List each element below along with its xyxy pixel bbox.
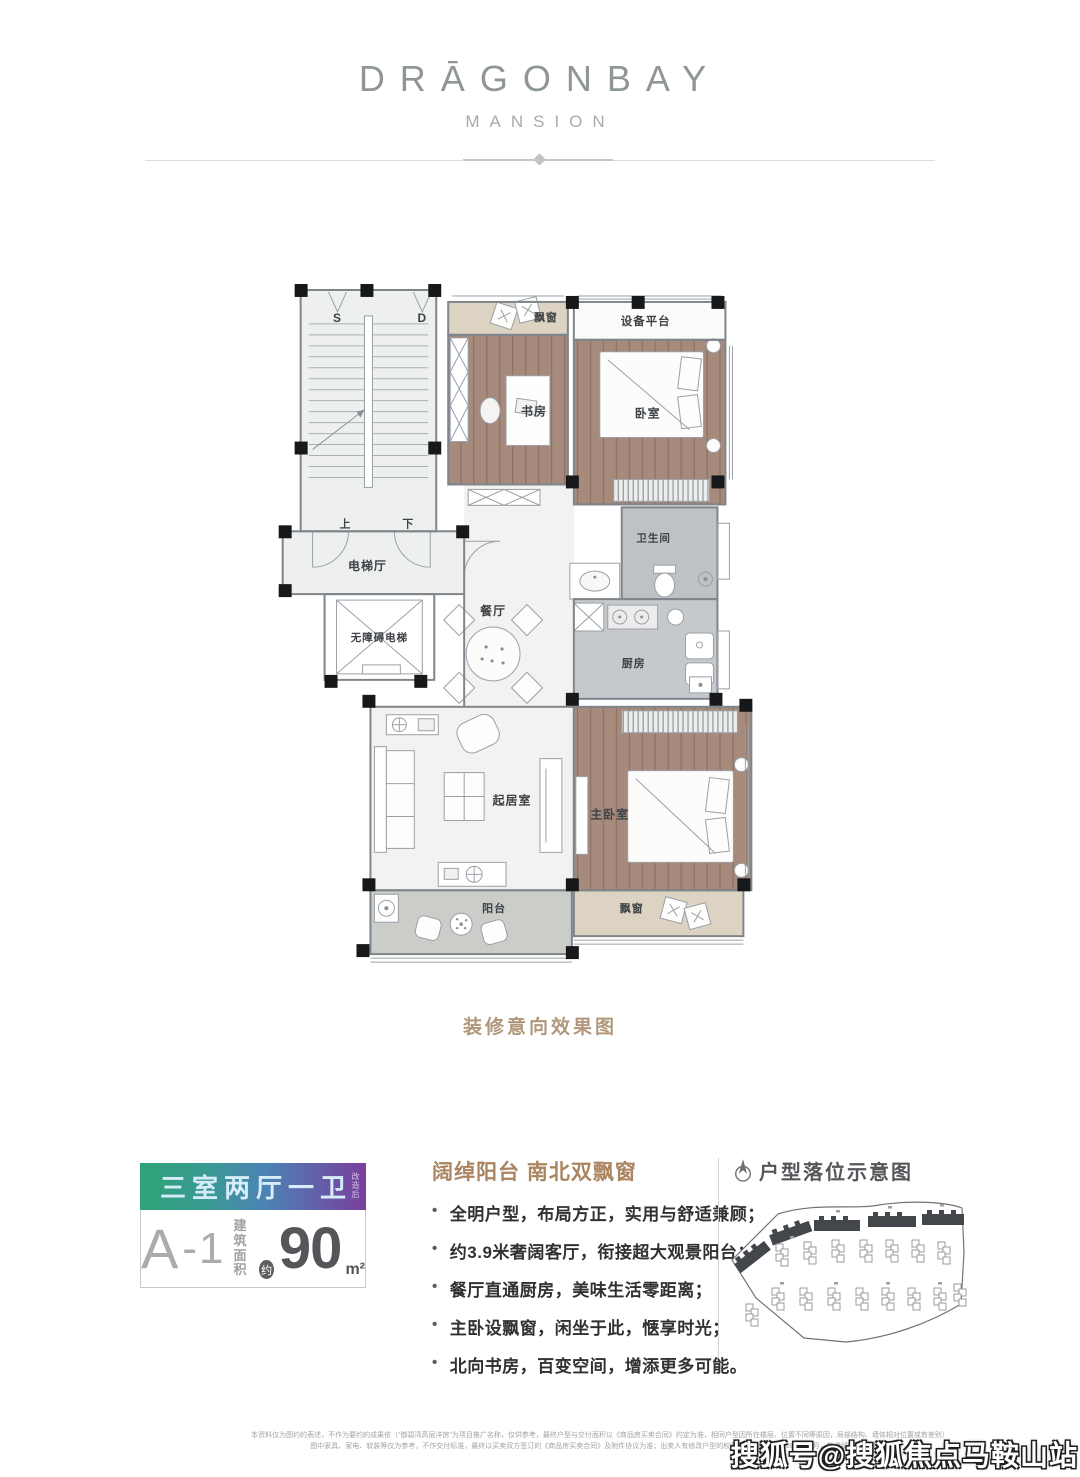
unit-headline: 三室两厅一卫 [154, 1168, 352, 1205]
divider-ornament-icon [533, 153, 546, 166]
plan-caption: 装修意向效果图 [0, 1012, 1080, 1039]
unit-area-value: 90 [279, 1220, 342, 1278]
features-list: •全明户型，布局方正，实用与舒适兼顾； •约3.9米奢阔客厅，衔接超大观景阳台；… [432, 1200, 712, 1377]
compass-icon [733, 1158, 753, 1184]
bullet-icon: • [432, 1314, 438, 1335]
label-dining: 餐厅 [480, 603, 506, 618]
sitemap-header: 户型落位示意图 [733, 1156, 913, 1185]
feature-item: •主卧设飘窗，闲坐于此，惬享时光； [432, 1314, 712, 1339]
floor-plan: S D 飘窗 设备平台 书房 卧室 上 下 电梯厅 无障碍电梯 餐厅 卫生间 厨… [278, 280, 770, 988]
label-bay-top: 飘窗 [534, 310, 558, 324]
label-up: 上 [340, 516, 352, 530]
unit-headline-note: 改造后 [350, 1172, 361, 1199]
label-bedroom: 卧室 [635, 406, 661, 421]
feature-text: 北向书房，百变空间，增添更多可能。 [450, 1352, 748, 1377]
label-accessible-elevator: 无障碍电梯 [350, 631, 408, 644]
area-label-line2: 面积 [233, 1248, 246, 1278]
feature-text: 约3.9米奢阔客厅，衔接超大观景阳台； [450, 1238, 755, 1263]
feature-text: 主卧设飘窗，闲坐于此，惬享时光； [450, 1314, 730, 1339]
label-balcony: 阳台 [482, 901, 506, 915]
unit-code-letter: A [141, 1221, 178, 1277]
bullet-icon: • [432, 1276, 438, 1297]
feature-item: •约3.9米奢阔客厅，衔接超大观景阳台； [432, 1238, 712, 1263]
brand-subtitle: MANSION [0, 112, 1080, 132]
label-bay-bottom: 飘窗 [620, 901, 644, 915]
site-plan [716, 1192, 978, 1364]
label-master-bedroom: 主卧室 [590, 806, 629, 821]
label-kitchen: 厨房 [622, 656, 646, 670]
feature-text: 餐厅直通厨房，美味生活零距离； [450, 1276, 713, 1301]
label-living: 起居室 [492, 793, 532, 808]
label-down: 下 [402, 517, 414, 530]
bullet-icon: • [432, 1352, 438, 1373]
label-stair-s: S [333, 311, 342, 325]
unit-headline-bar: 三室两厅一卫 改造后 [140, 1163, 366, 1210]
unit-code-suffix: -1 [182, 1227, 225, 1271]
unit-area-label: 建筑 面积 [233, 1219, 253, 1279]
unit-area-box: A -1 建筑 面积 约 90 m² [140, 1210, 366, 1288]
approx-circle: 约 [259, 1260, 274, 1279]
unit-badge: 三室两厅一卫 改造后 A -1 建筑 面积 约 90 m² [140, 1163, 366, 1288]
label-bathroom: 卫生间 [636, 531, 670, 544]
brand-logo: DRĀGONBAY [0, 58, 1080, 100]
label-equipment: 设备平台 [621, 314, 671, 328]
label-stair-d: D [417, 311, 427, 325]
feature-item: •北向书房，百变空间，增添更多可能。 [432, 1352, 712, 1377]
feature-item: •全明户型，布局方正，实用与舒适兼顾； [432, 1200, 712, 1225]
features-title: 阔绰阳台 南北双飘窗 [432, 1156, 712, 1186]
label-elevator-hall: 电梯厅 [348, 558, 387, 573]
label-study: 书房 [521, 404, 547, 419]
page: DRĀGONBAY MANSION [0, 0, 1080, 1477]
bullet-icon: • [432, 1238, 438, 1259]
area-label-line1: 建筑 [233, 1218, 246, 1248]
feature-item: •餐厅直通厨房，美味生活零距离； [432, 1276, 712, 1301]
features-section: 阔绰阳台 南北双飘窗 •全明户型，布局方正，实用与舒适兼顾； •约3.9米奢阔客… [432, 1156, 712, 1390]
sitemap-title: 户型落位示意图 [759, 1156, 913, 1185]
watermark: 搜狐号@搜狐焦点马鞍山站 [731, 1434, 1078, 1474]
unit-area-unit: m² [345, 1261, 365, 1279]
bullet-icon: • [432, 1200, 438, 1221]
